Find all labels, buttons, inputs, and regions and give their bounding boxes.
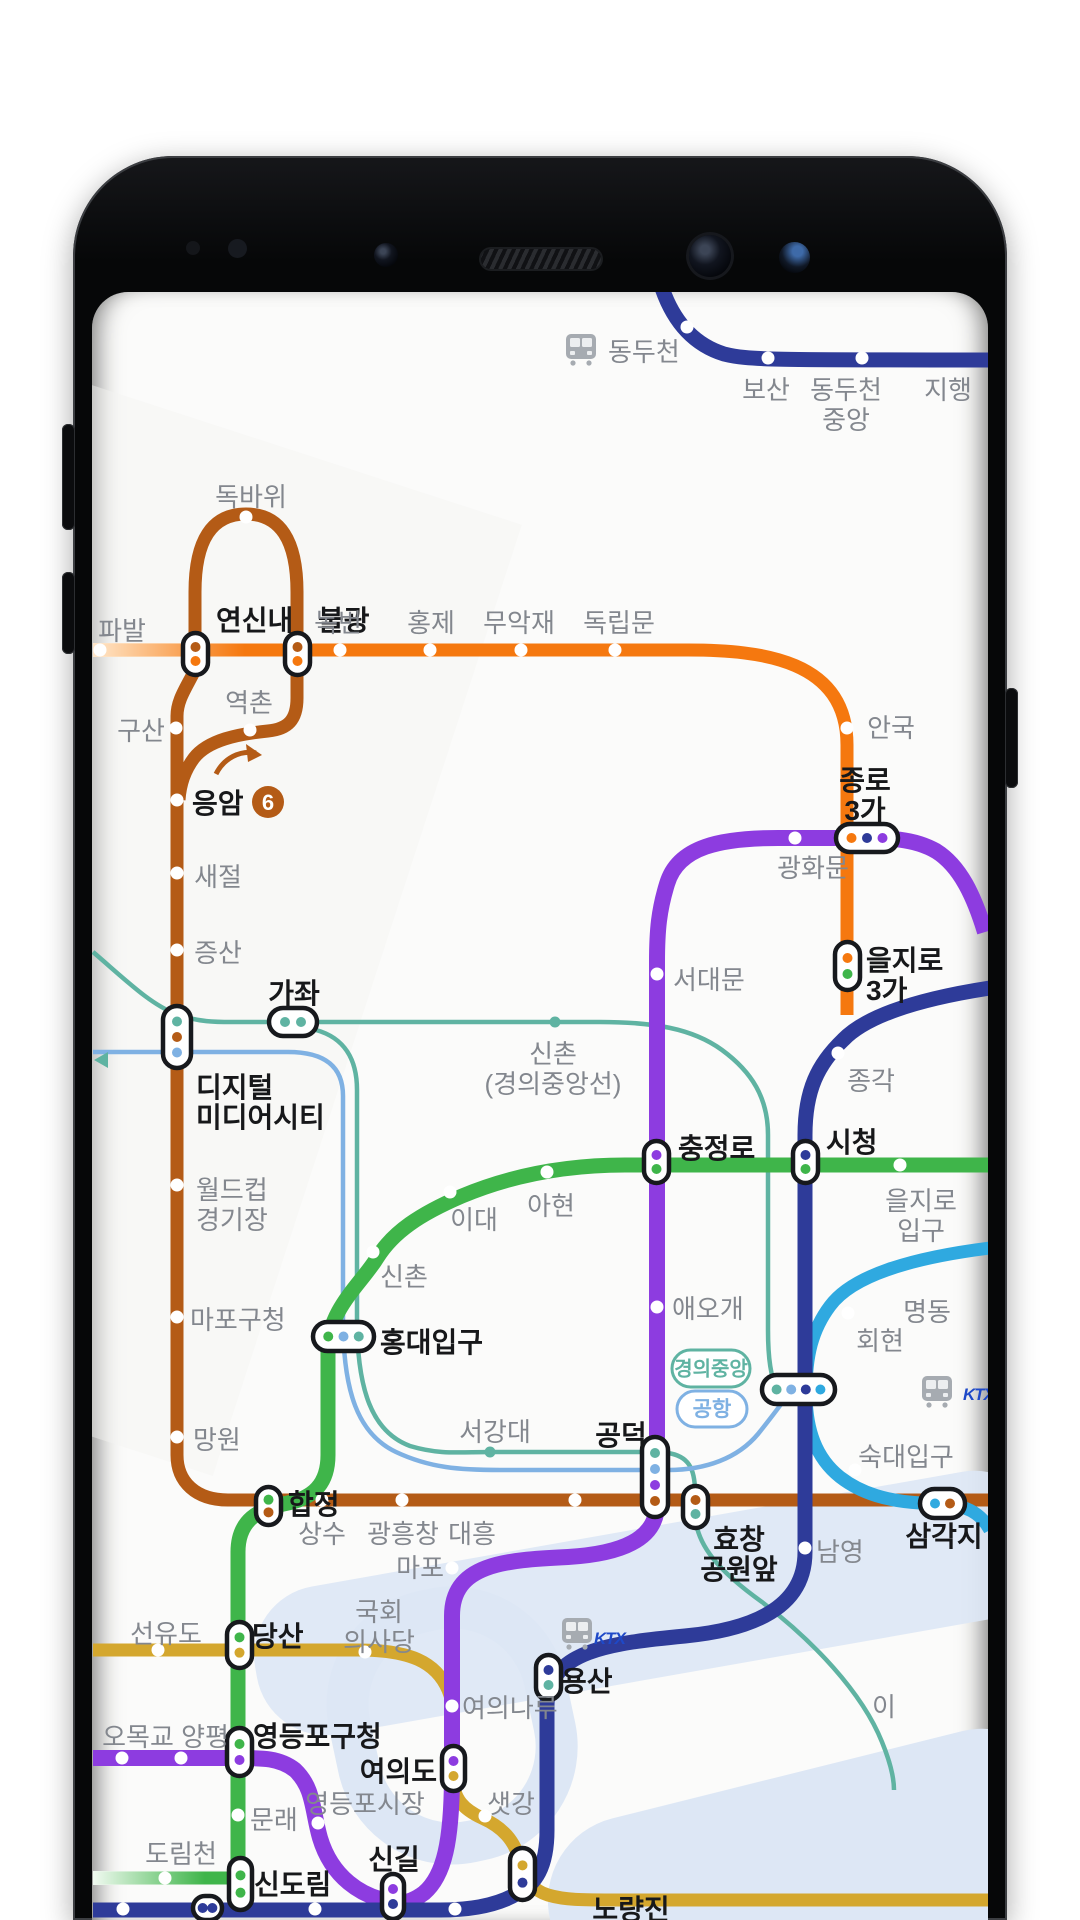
- station-label[interactable]: 종로3가: [839, 765, 891, 826]
- interchange-종로3가[interactable]: [836, 824, 898, 852]
- interchange-디지털미디어시티[interactable]: [163, 1006, 191, 1068]
- station-dot[interactable]: [171, 1311, 184, 1324]
- station-label[interactable]: 명동: [903, 1297, 951, 1327]
- station-dot[interactable]: [485, 1447, 496, 1458]
- station-label[interactable]: 오목교: [102, 1722, 174, 1752]
- iris-sensor-icon: [779, 242, 810, 273]
- speaker-grille: [481, 249, 601, 269]
- station-label[interactable]: 숙대입구: [858, 1442, 954, 1472]
- svg-text:공항: 공항: [693, 1397, 732, 1421]
- station-label[interactable]: 독바위: [215, 482, 287, 512]
- interchange-을지로3가[interactable]: [835, 942, 860, 990]
- station-label[interactable]: 홍제: [407, 608, 455, 638]
- station-dot[interactable]: [424, 644, 437, 657]
- station-label[interactable]: 광화문: [777, 853, 849, 883]
- station-dot[interactable]: [651, 968, 664, 981]
- station-dot[interactable]: [240, 511, 253, 524]
- station-label[interactable]: 여의도: [360, 1756, 437, 1787]
- interchange-연신내[interactable]: [183, 633, 208, 675]
- interchange-신도림[interactable]: [229, 1858, 252, 1910]
- volume-button[interactable]: [62, 424, 75, 530]
- station-label[interactable]: 아현: [527, 1191, 575, 1221]
- station-label[interactable]: 당산: [252, 1621, 304, 1652]
- station-label[interactable]: 도림천: [145, 1839, 217, 1869]
- station-dot[interactable]: [175, 1752, 188, 1765]
- station-label[interactable]: 서대문: [673, 965, 745, 995]
- badge-경의중앙: 경의중앙: [672, 1350, 750, 1387]
- station-dot[interactable]: [367, 1246, 380, 1259]
- station-label[interactable]: 양평: [181, 1722, 229, 1752]
- station-label[interactable]: 샛강: [487, 1789, 535, 1819]
- proximity-sensor-icon: [374, 243, 398, 267]
- power-button[interactable]: [1005, 688, 1018, 788]
- bixby-button[interactable]: [62, 572, 75, 654]
- station-dot[interactable]: [762, 352, 775, 365]
- sensor-dot-icon: [228, 239, 247, 258]
- interchange-충정로[interactable]: [644, 1141, 669, 1183]
- station-label[interactable]: 공덕: [595, 1420, 647, 1451]
- interchange-당산[interactable]: [227, 1622, 252, 1668]
- station-dot[interactable]: [681, 321, 694, 334]
- station-dot[interactable]: [651, 1301, 664, 1314]
- station-dot[interactable]: [232, 1809, 245, 1822]
- station-dot[interactable]: [444, 1186, 457, 1199]
- screenshot-root: 6경의중앙공항 KTXKTX 동두천보산동두천중앙지행파발연신내불광녹번홍제무악…: [0, 0, 1080, 1920]
- interchange-영등포구청[interactable]: [227, 1728, 252, 1776]
- station-dot[interactable]: [171, 794, 184, 807]
- station-label[interactable]: 새절: [194, 862, 242, 892]
- station-dot[interactable]: [894, 1159, 907, 1172]
- station-label[interactable]: 이: [872, 1692, 896, 1722]
- station-dot[interactable]: [609, 644, 622, 657]
- interchange-가좌[interactable]: [269, 1008, 317, 1036]
- station-label[interactable]: 상수: [298, 1519, 346, 1549]
- station-label[interactable]: 종각: [847, 1066, 895, 1096]
- background-band: [92, 364, 522, 1476]
- station-dot[interactable]: [515, 644, 528, 657]
- station-label[interactable]: 가좌: [268, 978, 320, 1009]
- station-dot[interactable]: [842, 1307, 855, 1320]
- han-river: [530, 1711, 988, 1920]
- station-label[interactable]: 망원: [193, 1425, 241, 1455]
- station-label[interactable]: 여의나루: [462, 1693, 558, 1723]
- station-label[interactable]: 애오개: [672, 1294, 744, 1324]
- interchange-신도림-1호선[interactable]: [193, 1896, 222, 1920]
- station-label[interactable]: 마포구청: [190, 1305, 286, 1335]
- station-label[interactable]: 홍대입구: [380, 1327, 483, 1358]
- station-label[interactable]: 보산: [742, 375, 790, 405]
- station-label[interactable]: 증산: [194, 938, 242, 968]
- interchange-불광[interactable]: [285, 633, 310, 675]
- front-camera-icon: [689, 235, 731, 277]
- station-label[interactable]: 을지로입구: [885, 1186, 957, 1246]
- interchange-서울역[interactable]: [762, 1375, 835, 1404]
- station-dot[interactable]: [550, 1017, 561, 1028]
- station-label[interactable]: 연신내: [216, 605, 293, 636]
- station-dot[interactable]: [789, 832, 802, 845]
- station-dot[interactable]: [832, 1047, 845, 1060]
- interchange-시청[interactable]: [793, 1141, 818, 1183]
- subway-map[interactable]: 6경의중앙공항 KTXKTX 동두천보산동두천중앙지행파발연신내불광녹번홍제무악…: [92, 292, 988, 1920]
- station-label[interactable]: 지행: [924, 375, 972, 405]
- station-dot[interactable]: [449, 1903, 462, 1916]
- interchange-삼각지[interactable]: [920, 1489, 965, 1518]
- station-label[interactable]: 이대: [450, 1205, 498, 1235]
- station-label[interactable]: 시청: [826, 1127, 878, 1158]
- station-dot[interactable]: [446, 1700, 459, 1713]
- station-label[interactable]: 대흥: [448, 1519, 496, 1549]
- station-label[interactable]: 응암: [192, 788, 244, 819]
- ktx-logo: KTX: [963, 1385, 988, 1404]
- station-label[interactable]: 남영: [816, 1537, 864, 1567]
- badge-6: 6: [252, 786, 284, 818]
- train-icon: [922, 1376, 952, 1408]
- station-label[interactable]: 무악재: [483, 608, 555, 638]
- station-dot[interactable]: [446, 1562, 459, 1575]
- station-label[interactable]: 영등포구청: [253, 1721, 382, 1752]
- station-dot[interactable]: [171, 867, 184, 880]
- station-label[interactable]: 문래: [250, 1805, 298, 1835]
- ktx-logo: KTX: [594, 1629, 628, 1648]
- station-label[interactable]: 마포: [396, 1553, 444, 1583]
- station-label[interactable]: 용산: [561, 1666, 613, 1697]
- station-dot[interactable]: [170, 722, 183, 735]
- station-label[interactable]: 녹번: [314, 608, 362, 638]
- station-label[interactable]: 신촌: [380, 1262, 428, 1292]
- interchange-여의도[interactable]: [442, 1746, 465, 1791]
- svg-text:6: 6: [262, 790, 274, 815]
- station-dot[interactable]: [569, 1494, 582, 1507]
- station-label[interactable]: 광흥창: [367, 1519, 439, 1549]
- interchange-홍대입구[interactable]: [313, 1322, 374, 1351]
- station-dot[interactable]: [856, 352, 869, 365]
- station-label[interactable]: 회현: [856, 1326, 904, 1356]
- interchange-효창공원앞[interactable]: [683, 1486, 708, 1528]
- station-label[interactable]: 독립문: [583, 608, 655, 638]
- station-label[interactable]: 동두천: [608, 337, 680, 367]
- station-label[interactable]: 신도림: [254, 1869, 331, 1900]
- station-label[interactable]: 선유도: [130, 1619, 202, 1649]
- svg-text:경의중앙: 경의중앙: [674, 1358, 748, 1381]
- station-dot[interactable]: [171, 944, 184, 957]
- station-dot[interactable]: [244, 724, 257, 737]
- station-label[interactable]: 동두천중앙: [810, 375, 882, 435]
- station-label[interactable]: 영등포시장: [305, 1789, 425, 1819]
- station-dot[interactable]: [171, 1179, 184, 1192]
- station-dot[interactable]: [171, 1431, 184, 1444]
- train-icon: [566, 334, 596, 366]
- station-label[interactable]: 신촌(경의중앙선): [485, 1039, 622, 1099]
- station-dot[interactable]: [396, 1494, 409, 1507]
- station-label[interactable]: 삼각지: [905, 1521, 982, 1552]
- sensor-dot-icon: [186, 241, 200, 255]
- station-label[interactable]: 안국: [867, 713, 915, 743]
- station-dot[interactable]: [159, 1872, 172, 1885]
- station-label[interactable]: 충정로: [678, 1133, 755, 1164]
- station-dot[interactable]: [117, 1903, 130, 1916]
- interchange-노량진[interactable]: [510, 1848, 535, 1900]
- station-dot[interactable]: [334, 644, 347, 657]
- station-dot[interactable]: [799, 1542, 812, 1555]
- station-label[interactable]: 합정: [288, 1489, 340, 1520]
- station-dot[interactable]: [541, 1166, 554, 1179]
- station-label[interactable]: 신길: [368, 1844, 420, 1875]
- interchange-합정[interactable]: [256, 1487, 281, 1525]
- interchange-신길[interactable]: [382, 1874, 404, 1919]
- subway-line-line1: [662, 292, 988, 360]
- station-label[interactable]: 파발: [98, 616, 146, 646]
- station-label[interactable]: 노량진: [592, 1894, 669, 1920]
- station-label[interactable]: 서강대: [459, 1417, 531, 1447]
- station-dot[interactable]: [309, 1903, 322, 1916]
- station-label[interactable]: 월드컵경기장: [196, 1175, 268, 1235]
- screen: 6경의중앙공항 KTXKTX 동두천보산동두천중앙지행파발연신내불광녹번홍제무악…: [92, 292, 988, 1920]
- station-dot[interactable]: [841, 722, 854, 735]
- station-label[interactable]: 역촌: [225, 688, 273, 718]
- station-label[interactable]: 구산: [117, 716, 165, 746]
- badge-공항: 공항: [677, 1391, 747, 1427]
- station-dot[interactable]: [116, 1752, 129, 1765]
